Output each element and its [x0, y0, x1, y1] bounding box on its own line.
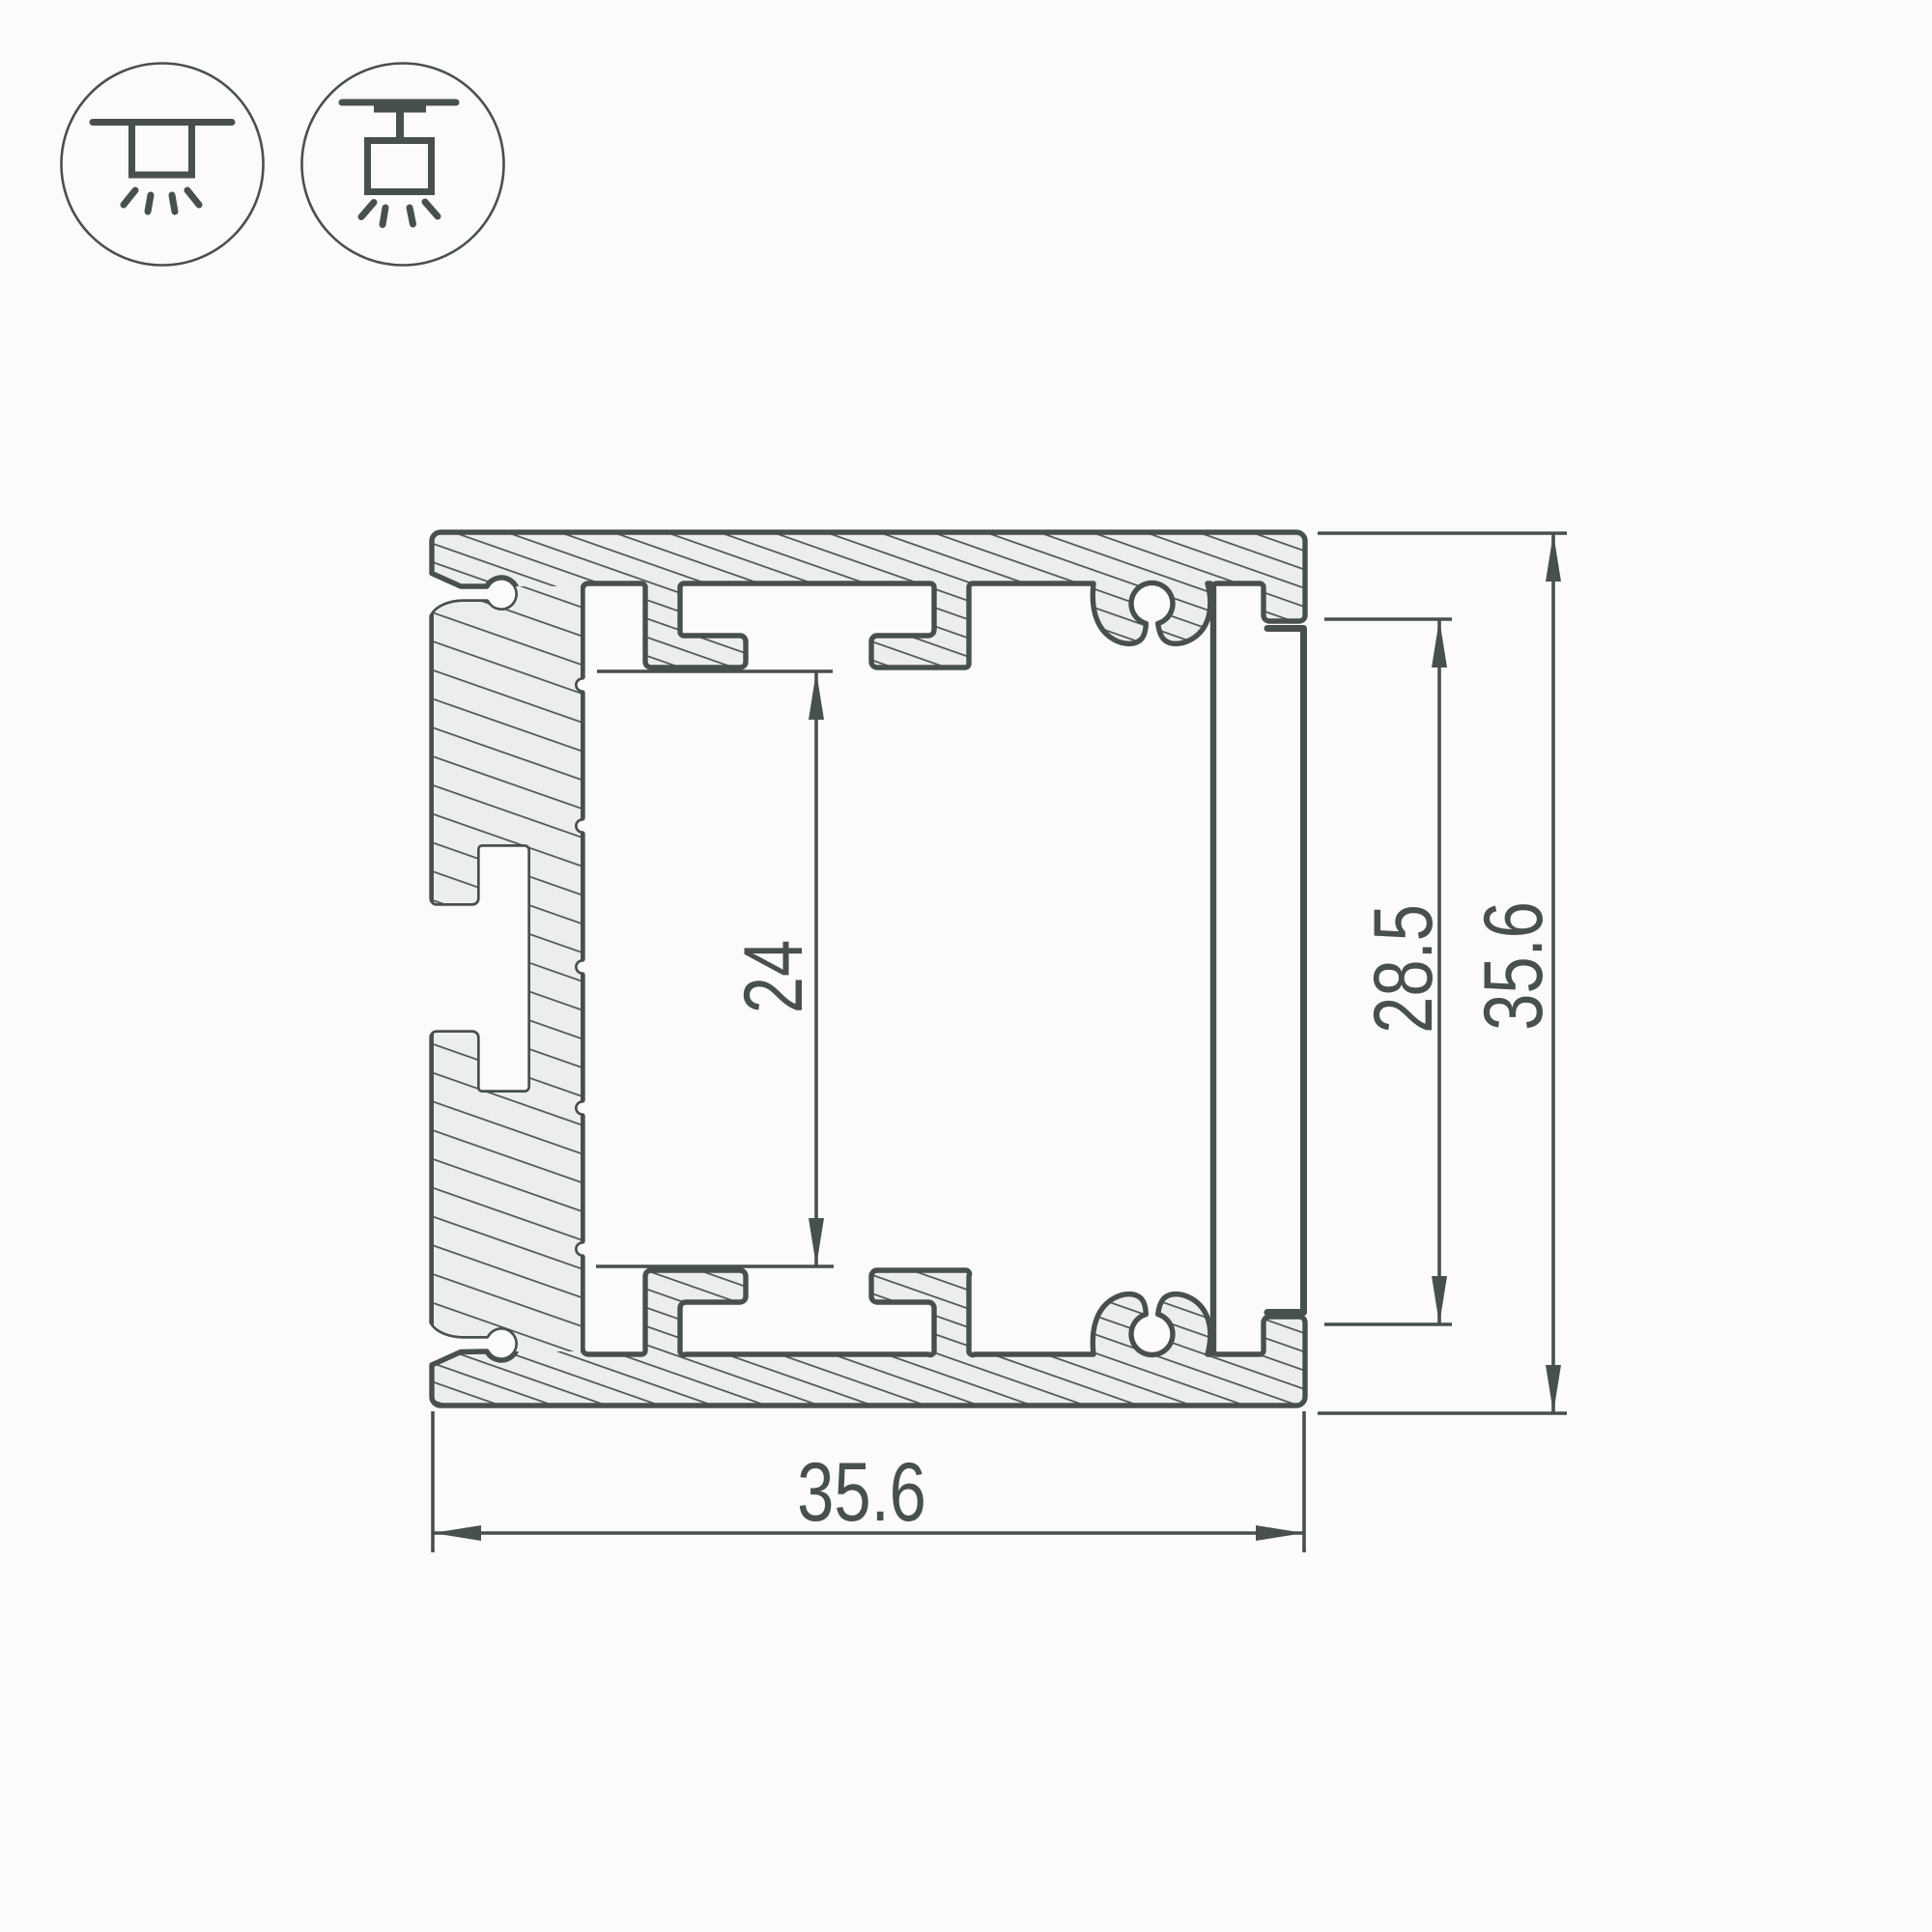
svg-text:28.5: 28.5 [1357, 904, 1450, 1034]
svg-text:35.6: 35.6 [797, 1446, 926, 1539]
svg-text:35.6: 35.6 [1467, 901, 1560, 1031]
svg-text:24: 24 [727, 940, 820, 1014]
